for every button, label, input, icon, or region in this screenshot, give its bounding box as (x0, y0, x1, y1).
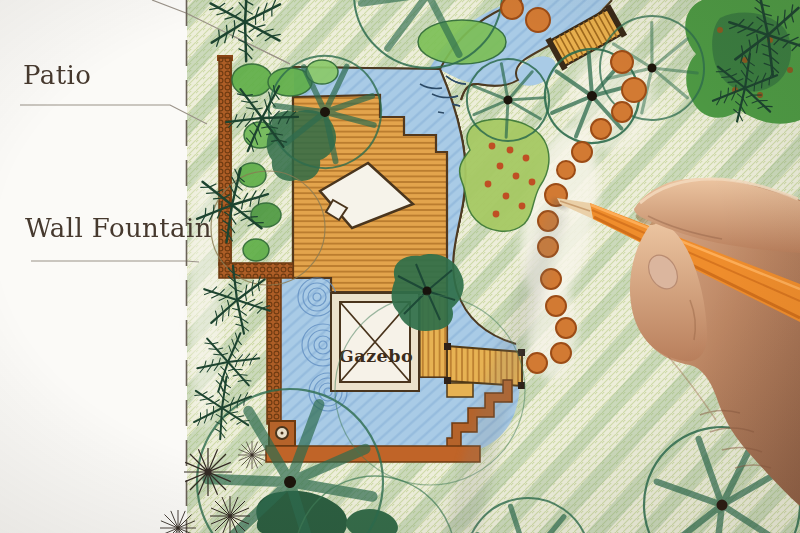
plan-drawing: Gazebo (0, 0, 800, 533)
photo-vignette (0, 0, 800, 533)
patio-label: Patio (23, 62, 91, 88)
wall-fountain-label: Wall Fountain (25, 215, 212, 241)
photo-of-landscape-plan-with-hand: Gazebo (0, 0, 800, 533)
